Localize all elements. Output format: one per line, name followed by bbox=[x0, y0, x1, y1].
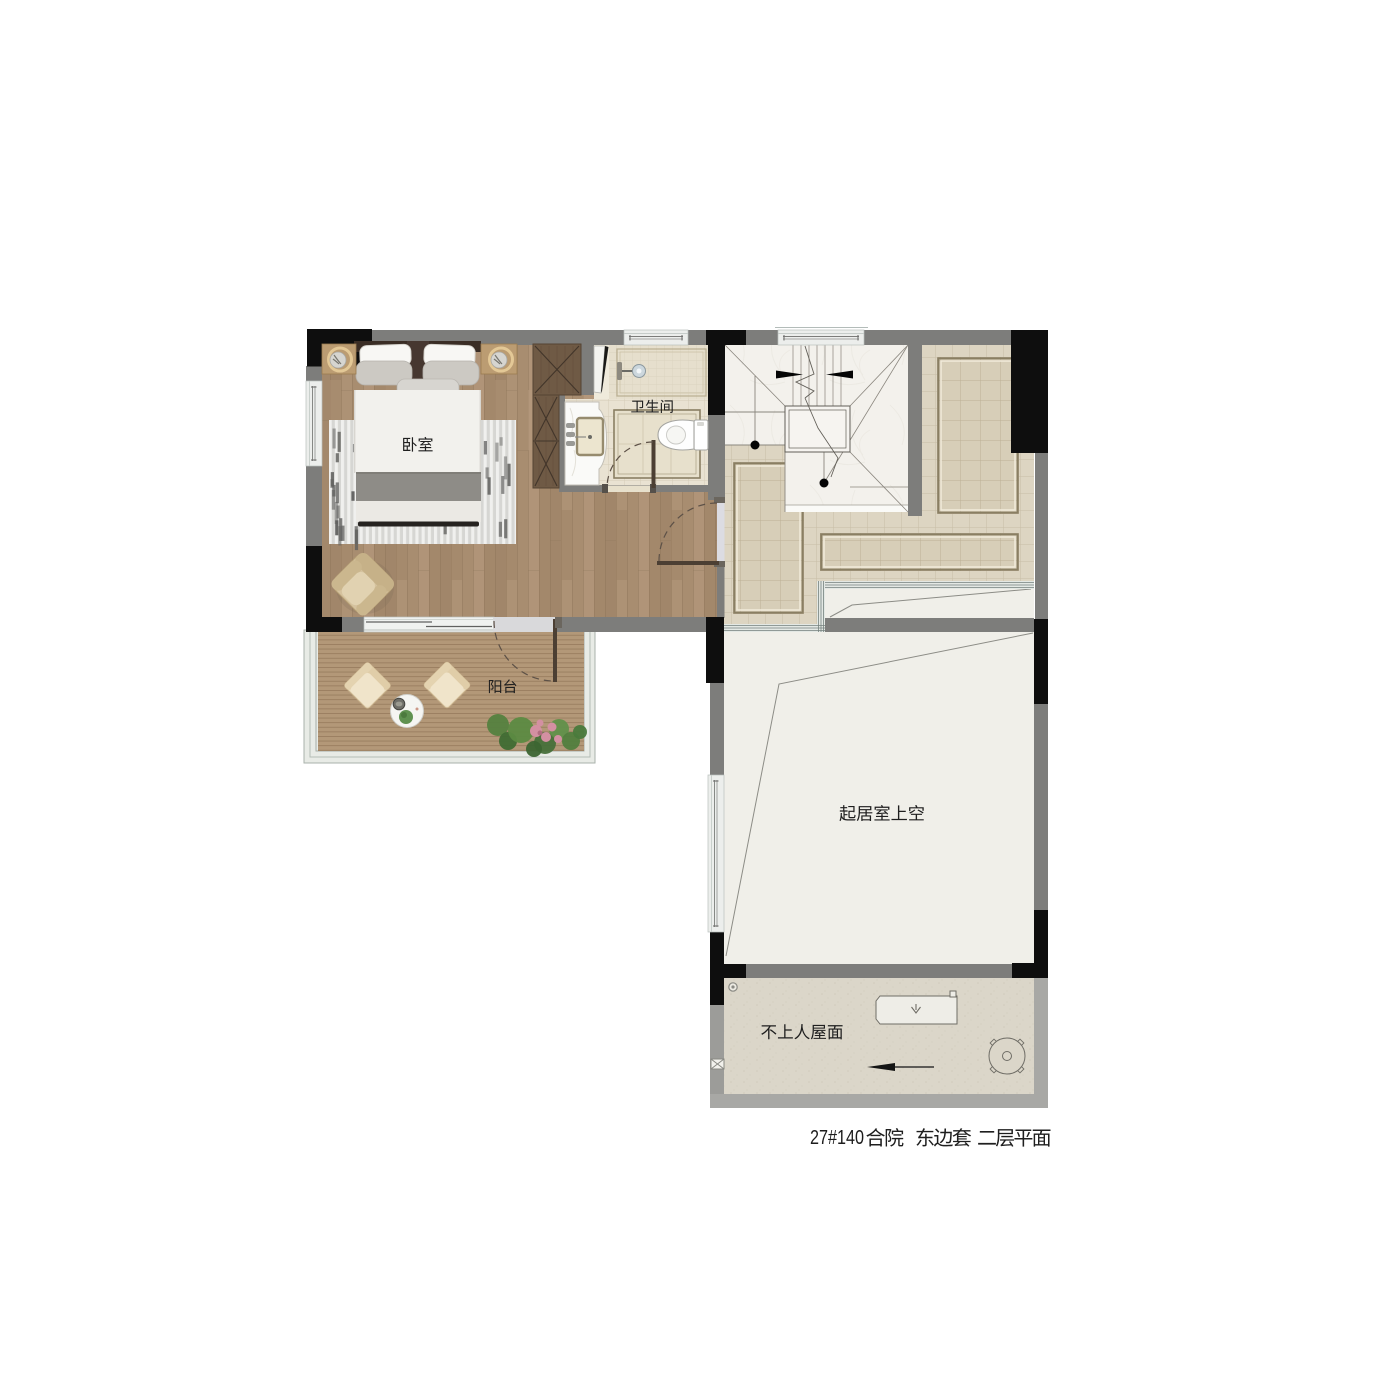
svg-text:27#140: 27#140 bbox=[810, 1127, 864, 1149]
